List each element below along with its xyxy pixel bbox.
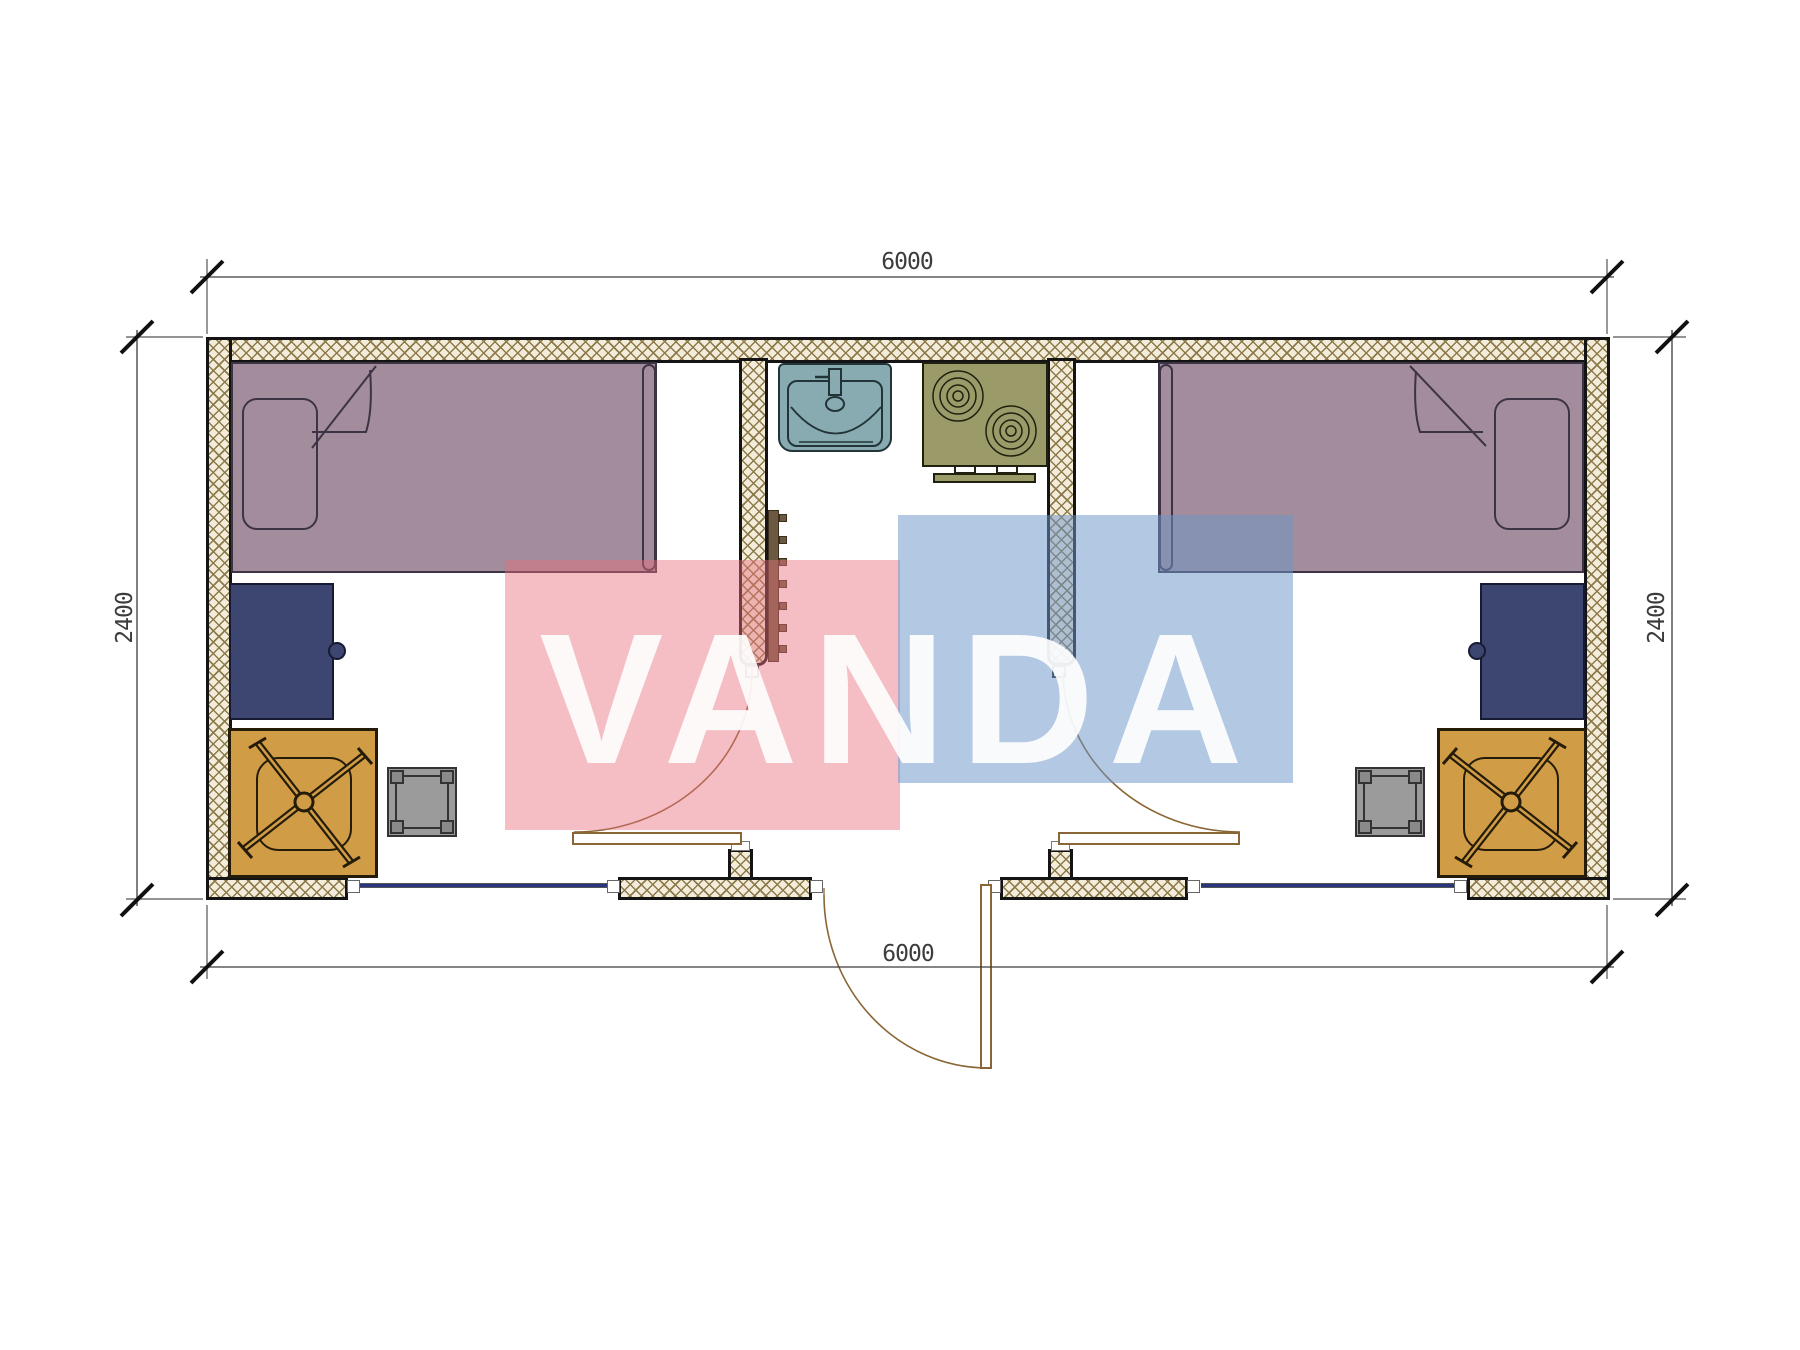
chair-seat-right [1463, 757, 1559, 851]
wall-bottom-segment-d [1467, 877, 1610, 900]
wall-top [206, 337, 1610, 363]
window-right [1201, 883, 1456, 888]
stool-leg [390, 820, 404, 834]
floor-plan-drawing: 6000 6000 2400 2400 VANDA [0, 0, 1800, 1350]
stool-leg [440, 820, 454, 834]
dimension-label-bottom: 6000 [858, 941, 958, 967]
radiator-fin [779, 536, 787, 544]
dimension-label-top: 6000 [857, 249, 957, 275]
stool-leg [1408, 770, 1422, 784]
chair-seat-left [256, 757, 352, 851]
door-jamb [1454, 880, 1467, 893]
stove [922, 362, 1048, 467]
window-left [360, 883, 609, 888]
stove-bracket [933, 473, 1036, 483]
wall-bottom-segment-b [618, 877, 812, 900]
radiator-fin [779, 514, 787, 522]
pillow-right [1494, 398, 1570, 530]
door-jamb [810, 880, 823, 893]
stool-leg [1358, 770, 1372, 784]
door-leaf-right-room [1058, 832, 1240, 845]
desk-right [1480, 583, 1585, 720]
door-jamb [607, 880, 620, 893]
wall-bottom-segment-c [1000, 877, 1188, 900]
wall-bottom-stub-c [1048, 849, 1073, 880]
wall-right [1584, 337, 1610, 900]
watermark-text: VANDA [448, 604, 1348, 794]
dimension-label-left: 2400 [112, 568, 142, 668]
door-leaf-left-room [572, 832, 742, 845]
door-jamb [1187, 880, 1200, 893]
door-leaf-entrance [980, 884, 992, 1069]
faucet [828, 368, 842, 396]
wall-bottom-stub-b [728, 849, 753, 880]
door-arc-entrance [824, 895, 986, 1068]
stool-leg [1408, 820, 1422, 834]
door-jamb [347, 880, 360, 893]
desk-left [229, 583, 334, 720]
wall-bottom-segment-a [206, 877, 348, 900]
pillow-left [242, 398, 318, 530]
bed-left-frame-edge [642, 364, 656, 571]
stool-leg [390, 770, 404, 784]
stool-leg [1358, 820, 1372, 834]
dimension-label-right: 2400 [1644, 568, 1674, 668]
